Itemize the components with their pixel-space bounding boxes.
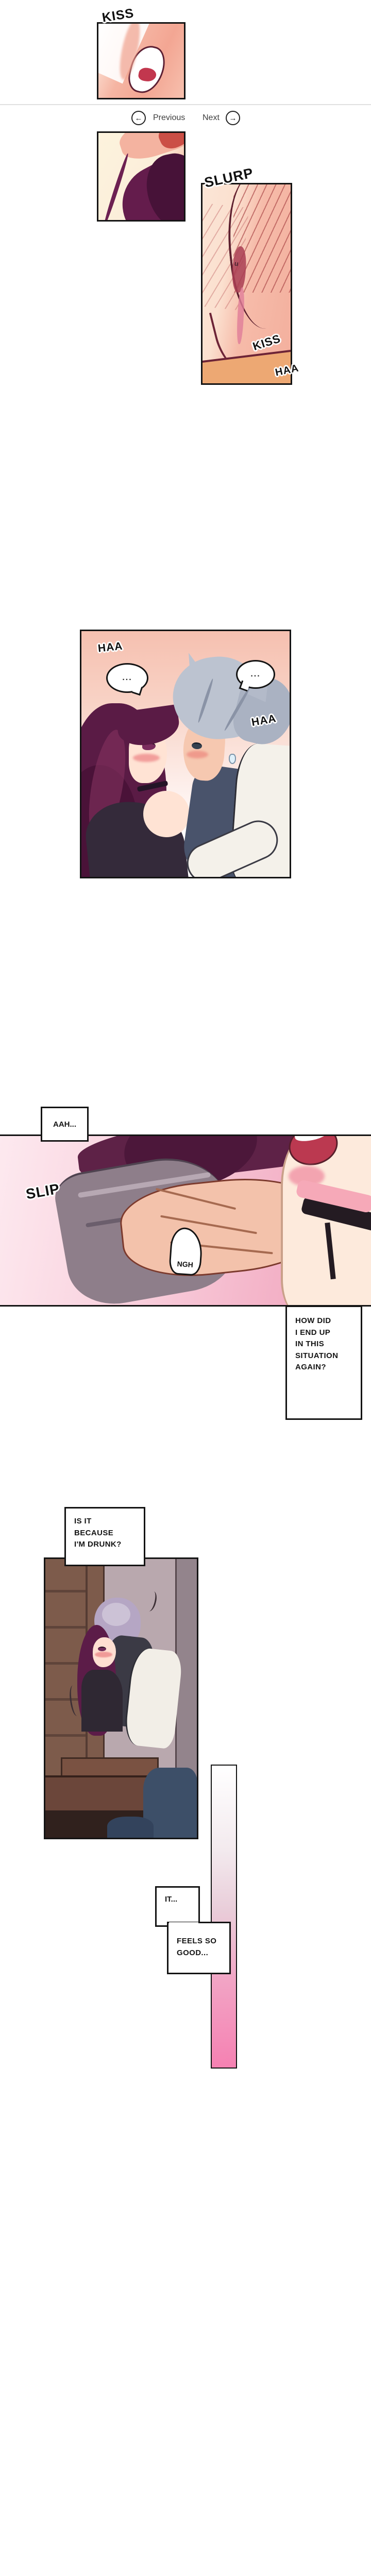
woman-dress-shape [81, 1670, 123, 1732]
caption-it: IT... [155, 1886, 200, 1927]
caption-feels: FEELS SO GOOD... [167, 1922, 231, 1974]
caption-it-text: IT... [165, 1895, 177, 1904]
caption-line: SITUATION [295, 1350, 361, 1362]
previous-arrow-icon[interactable]: ← [131, 111, 146, 125]
man-blush [187, 751, 208, 758]
comic-panel-couple: HAA ... ... HAA [80, 630, 291, 878]
caption-line: I'M DRUNK? [74, 1539, 144, 1551]
caption-line: HOW DID [295, 1315, 361, 1327]
sweat-drop [229, 754, 236, 764]
sfx-ngh-text: NGH [177, 1260, 193, 1269]
wardrobe-slat [45, 1590, 86, 1592]
comic-panel-shoulder-closeup [97, 131, 185, 222]
next-arrow-icon[interactable]: → [226, 111, 240, 125]
comic-panel-desk-scene [44, 1557, 198, 1839]
caption-is-it: IS IT BECAUSE I'M DRUNK? [64, 1507, 145, 1566]
previous-label[interactable]: Previous [153, 113, 185, 123]
speech-bubble-right-text: ... [250, 670, 260, 679]
caption-aah: AAH... [41, 1107, 89, 1142]
caption-line: BECAUSE [74, 1528, 144, 1539]
woman-blush [133, 754, 160, 762]
man-hair-highlight [102, 1603, 130, 1626]
sfx-haa-left: HAA [97, 640, 124, 655]
comic-panel-lip-closeup [97, 22, 185, 99]
caption-how-did: HOW DID I END UP IN THIS SITUATION AGAIN… [285, 1306, 362, 1420]
woman-blush [95, 1652, 112, 1657]
caption-line: AGAIN? [295, 1362, 361, 1374]
comic-panel-neck-kiss: u [201, 183, 292, 385]
wardrobe-slat [45, 1734, 86, 1737]
next-label[interactable]: Next [203, 113, 220, 123]
wardrobe-slat [45, 1626, 86, 1629]
caption-line: FEELS SO [177, 1936, 229, 1947]
next-button[interactable]: Next → [203, 111, 244, 126]
caption-line: IS IT [74, 1516, 144, 1528]
woman-eye [98, 1647, 106, 1651]
caption-line: GOOD... [177, 1947, 229, 1959]
transition-gradient-bar [211, 1765, 237, 2069]
caption-line: IN THIS [295, 1338, 361, 1350]
comic-panel-wide-grip: NGH SLIP [0, 1134, 371, 1307]
webtoon-reader-page: KISS ← Previous Next → u SLURP K [0, 0, 371, 2576]
caption-merge-patch [169, 1922, 198, 1928]
caption-line: I END UP [295, 1327, 361, 1339]
caption-aah-text: AAH... [53, 1120, 76, 1129]
cushion-shape [107, 1817, 154, 1839]
previous-button[interactable]: ← Previous [131, 111, 183, 126]
speech-bubble-left-text: ... [122, 673, 132, 683]
nav-divider [0, 104, 371, 105]
